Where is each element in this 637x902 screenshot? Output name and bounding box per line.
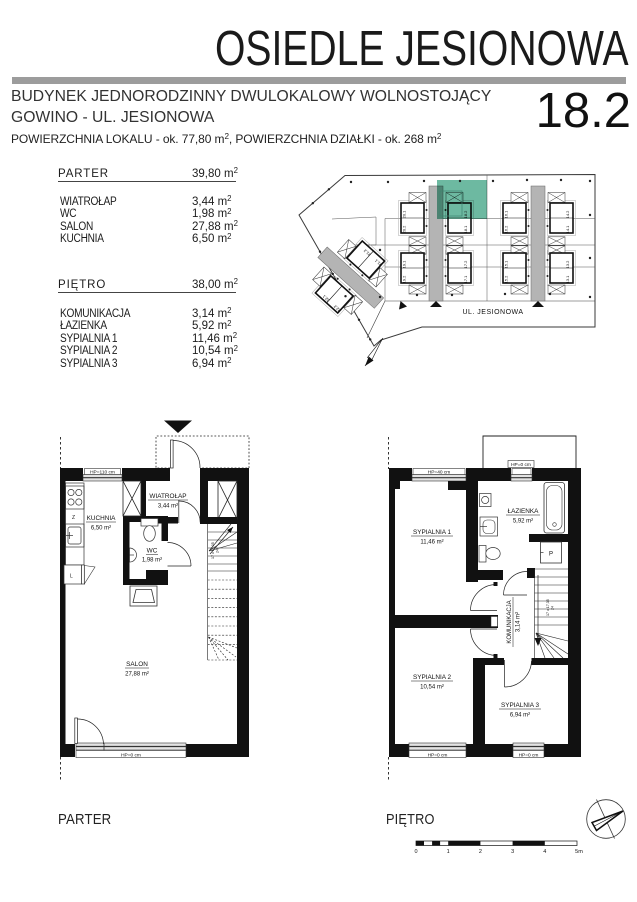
svg-text:15.1: 15.1 (504, 260, 509, 269)
svg-text:3,14 m²: 3,14 m² (516, 612, 522, 632)
svg-text:20.2: 20.2 (402, 225, 407, 234)
svg-text:14.2: 14.2 (565, 210, 570, 219)
svg-text:1: 1 (447, 849, 450, 855)
svg-text:1,98 m²: 1,98 m² (142, 558, 162, 564)
svg-text:UL. JESIONOWA: UL. JESIONOWA (462, 309, 523, 316)
svg-text:3,44 m²: 3,44 m² (158, 504, 178, 510)
svg-text:Z: Z (72, 515, 75, 521)
svg-text:16.2: 16.2 (504, 225, 509, 234)
svg-text:HP=40 cm: HP=40 cm (428, 470, 451, 476)
svg-text:SYPIALNIA 2: SYPIALNIA 2 (413, 674, 451, 681)
svg-text:HP=0 cm: HP=0 cm (511, 462, 531, 468)
svg-text:KUCHNIA: KUCHNIA (87, 515, 116, 522)
svg-text:4: 4 (543, 849, 546, 855)
svg-text:17 x 17,35: 17 x 17,35 (211, 542, 215, 559)
svg-text:3: 3 (511, 849, 514, 855)
svg-text:10,54 m²: 10,54 m² (420, 685, 444, 691)
svg-text:13.1: 13.1 (565, 275, 570, 284)
svg-text:ŁAZIENKA: ŁAZIENKA (508, 508, 540, 515)
svg-text:19.2: 19.2 (402, 275, 407, 284)
svg-text:SYPIALNIA 1: SYPIALNIA 1 (413, 529, 451, 536)
svg-text:6,94 m²: 6,94 m² (510, 713, 530, 719)
svg-text:5,92 m²: 5,92 m² (513, 519, 533, 525)
svg-text:13.2: 13.2 (565, 260, 570, 269)
svg-text:17.2: 17.2 (463, 260, 468, 269)
svg-text:5m: 5m (575, 849, 583, 855)
svg-text:17.1: 17.1 (463, 275, 468, 284)
svg-text:SYPIALNIA 3: SYPIALNIA 3 (501, 702, 539, 709)
svg-text:11,46 m²: 11,46 m² (420, 540, 443, 546)
svg-text:24: 24 (216, 549, 220, 553)
svg-text:WIATROŁAP: WIATROŁAP (149, 493, 186, 500)
svg-text:24: 24 (551, 606, 555, 610)
svg-text:17 x 17,35: 17 x 17,35 (546, 599, 550, 616)
svg-text:WC: WC (147, 548, 158, 555)
svg-text:0: 0 (414, 849, 417, 855)
svg-text:27,88 m²: 27,88 m² (125, 672, 149, 678)
svg-text:18.1: 18.1 (463, 225, 468, 234)
svg-text:20.1: 20.1 (402, 210, 407, 219)
svg-text:16.1: 16.1 (504, 210, 509, 219)
svg-text:2: 2 (479, 849, 482, 855)
svg-text:15.2: 15.2 (504, 275, 509, 284)
svg-text:HP=0 cm: HP=0 cm (428, 752, 448, 758)
svg-text:19.1: 19.1 (402, 260, 407, 269)
svg-text:14.1: 14.1 (565, 225, 570, 234)
svg-text:L: L (70, 574, 73, 580)
svg-text:6,50 m²: 6,50 m² (91, 526, 111, 532)
svg-text:HP=0 cm: HP=0 cm (519, 752, 539, 758)
svg-text:HP=110 cm: HP=110 cm (90, 470, 115, 476)
svg-text:P: P (549, 552, 553, 558)
svg-text:HP=0 cm: HP=0 cm (121, 752, 141, 758)
svg-text:SALON: SALON (126, 661, 148, 668)
svg-text:KOMUNIKACJA: KOMUNIKACJA (507, 600, 513, 643)
